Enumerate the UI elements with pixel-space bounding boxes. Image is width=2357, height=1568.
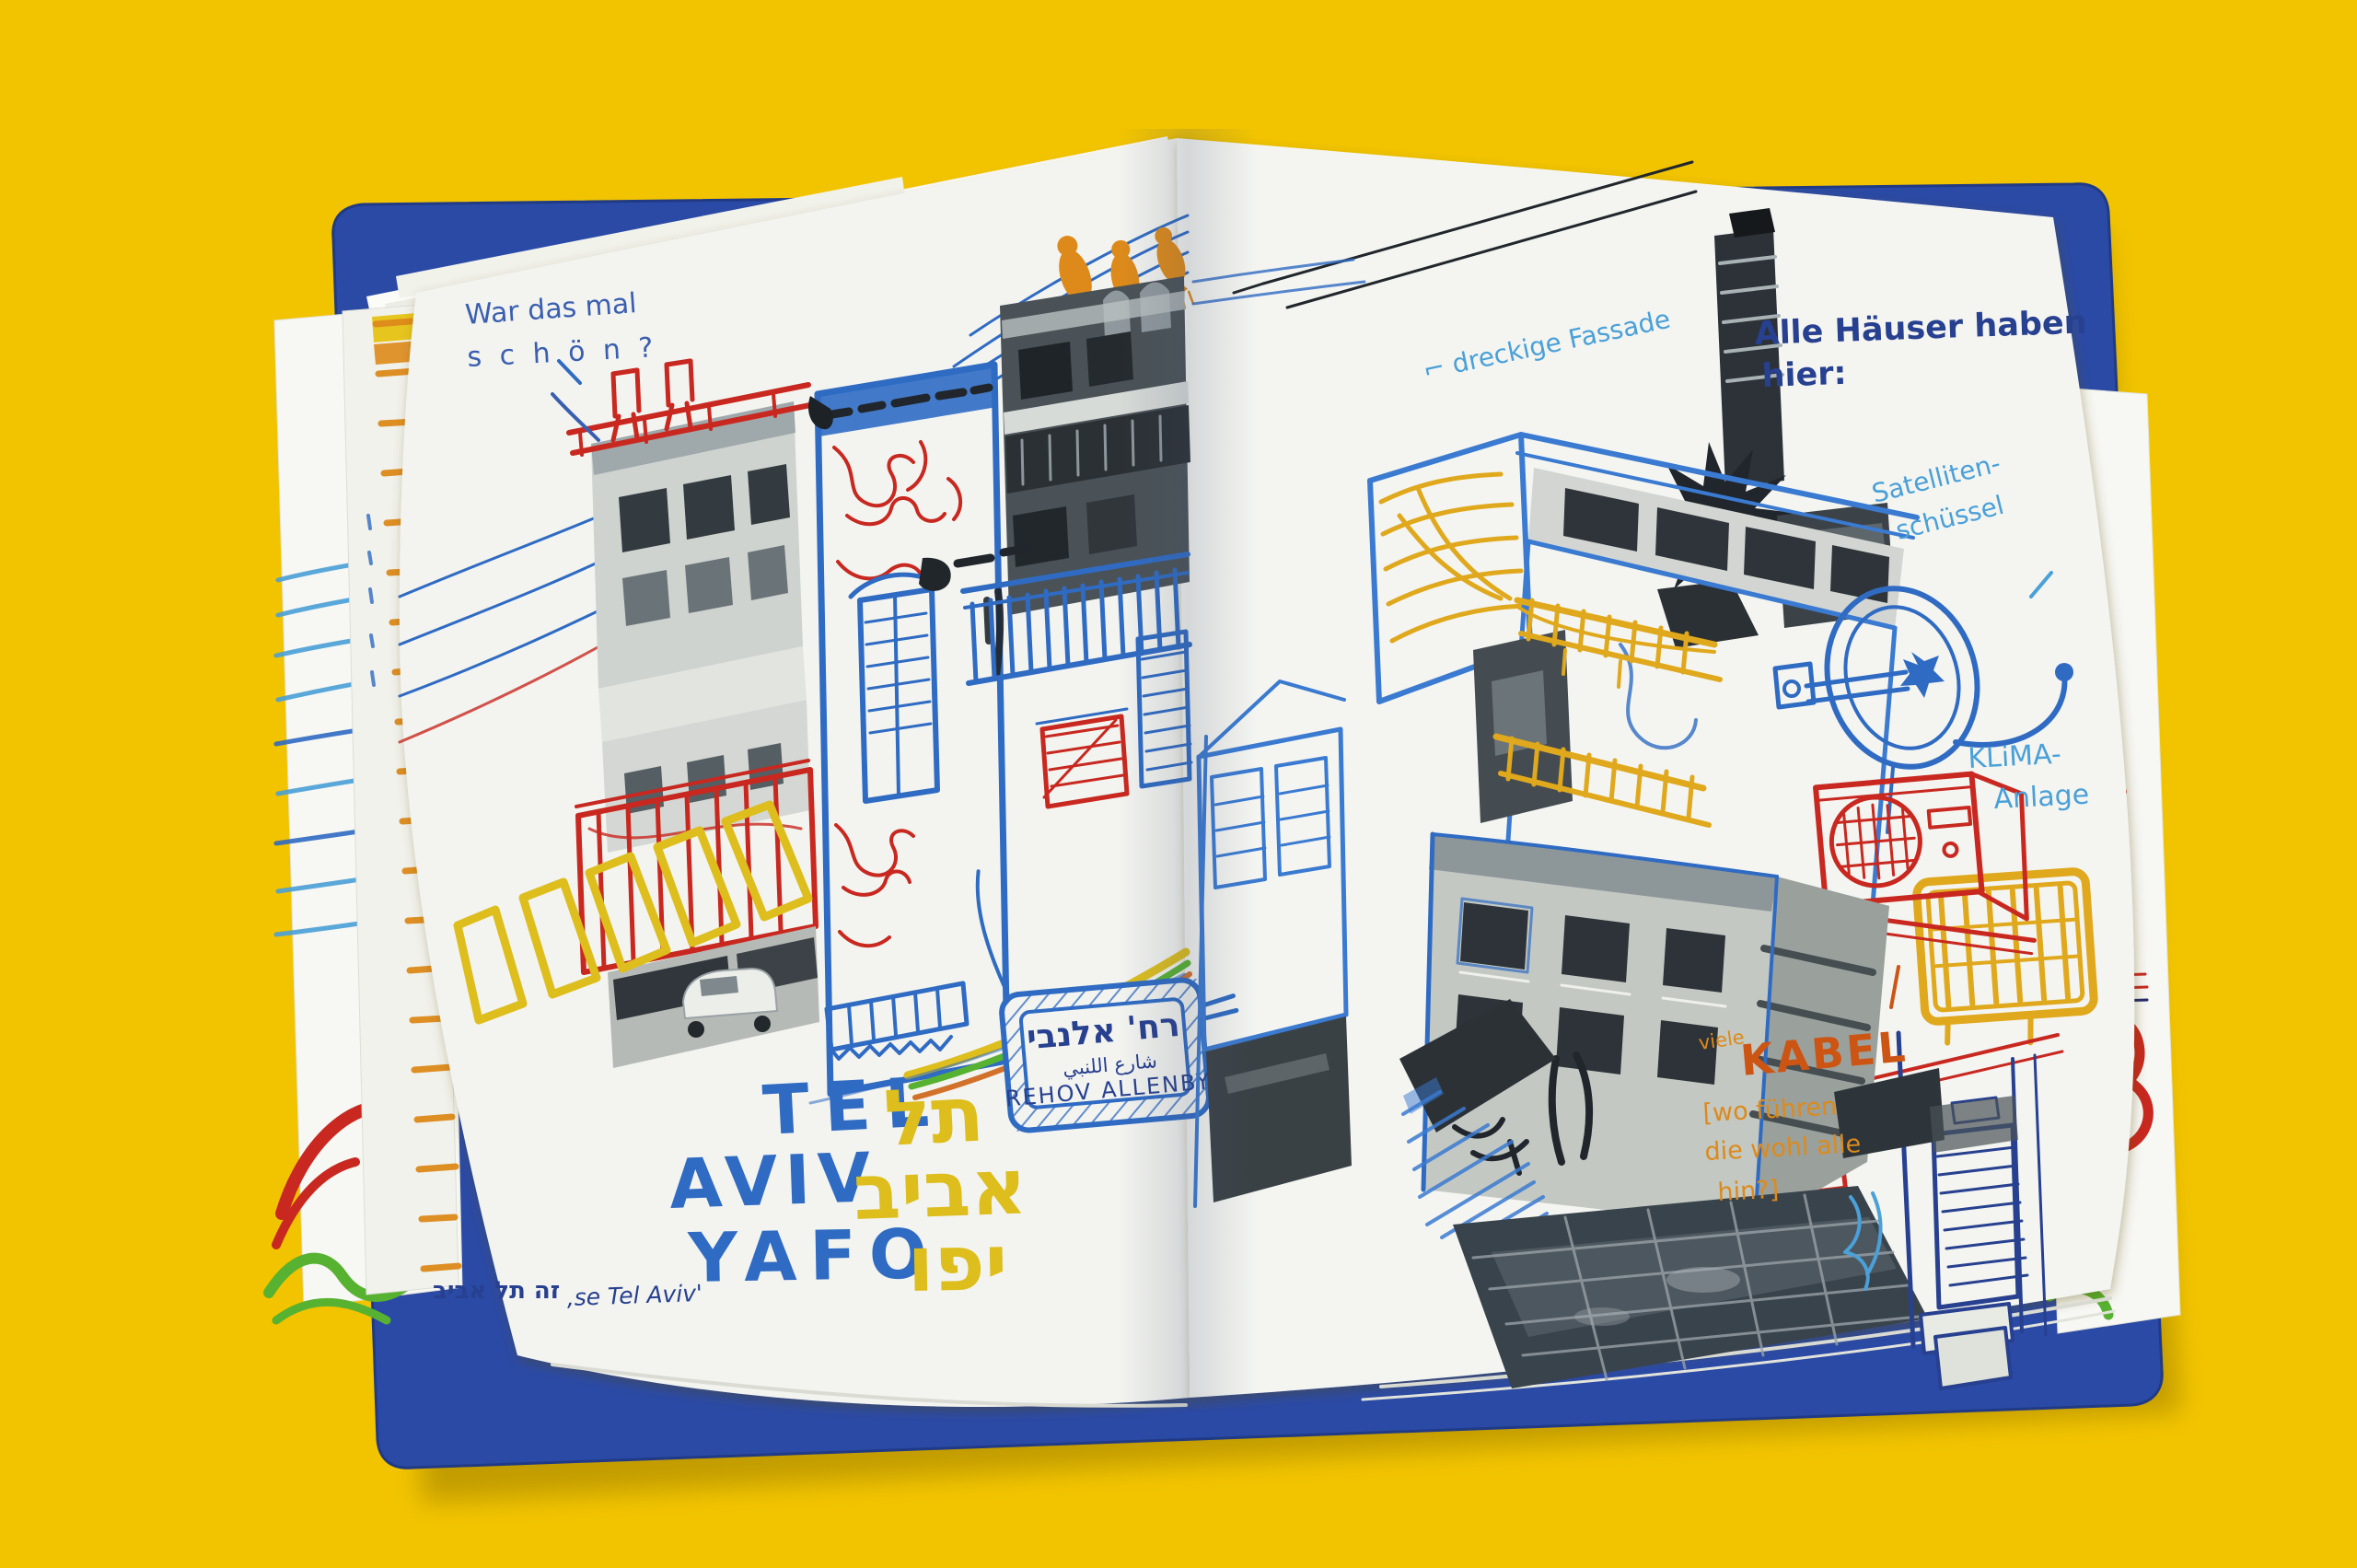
sketchbook-photo: רח' אלנבי شارع اللنبي REHOV ALLENBY TEL … [0,0,2357,1568]
title-yafo-hebrew: יפו [907,1217,1009,1309]
book-scene: רח' אלנבי شارع اللنبي REHOV ALLENBY TEL … [0,0,2357,1568]
annotation-kabel-note3: hin?] [1717,1176,1780,1207]
title-aviv: AVIV [668,1138,879,1225]
caption-latin: ‚se Tel Aviv' [566,1280,702,1311]
title-yafo: YAFO [687,1214,941,1298]
middle-tower [808,365,1007,1094]
fore-edge-yellow-bar [372,313,418,343]
spine-gutter-shadow [1119,129,1257,1409]
annotation-klima-line2: Anlage [1993,779,2090,816]
heading-line2: hier: [1761,355,1847,395]
annotation-klima-line1: KLiMA- [1968,738,2062,775]
caption-hebrew: זה תל אביב [433,1277,560,1305]
